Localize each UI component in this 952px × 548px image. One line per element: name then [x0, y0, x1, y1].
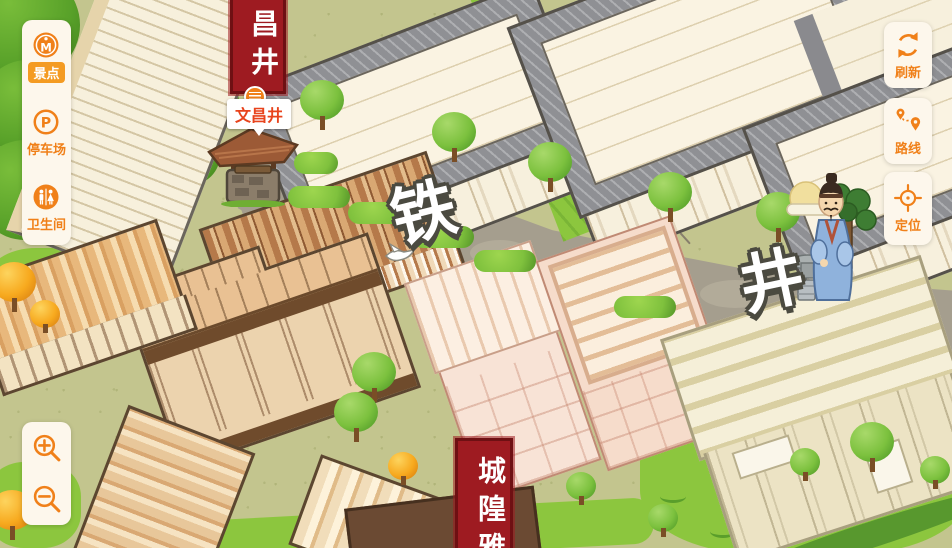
- sidebar-item-restroom[interactable]: 卫生间: [27, 182, 66, 233]
- poi-banner-top[interactable]: 文昌井: [230, 0, 286, 94]
- map-canvas[interactable]: 铁 井 文昌井 城隍雅 文昌井: [0, 0, 952, 548]
- sidebar-item-label: 卫生间: [27, 214, 66, 233]
- locate-button[interactable]: 定位: [884, 172, 932, 245]
- parking-icon: P: [31, 107, 61, 137]
- orange-tree: [388, 452, 418, 485]
- locate-icon: [893, 183, 923, 213]
- poi-label[interactable]: 文昌井: [227, 99, 291, 129]
- control-label: 定位: [895, 215, 921, 234]
- poi-label-pointer: [253, 128, 265, 136]
- street-name-char: 井: [734, 244, 810, 320]
- route-icon: [893, 106, 923, 136]
- magnifier-plus-icon: [30, 431, 64, 465]
- orange-tree: [30, 300, 60, 333]
- tree: [648, 172, 692, 222]
- svg-text:P: P: [41, 115, 51, 131]
- tree: [850, 422, 894, 472]
- tree: [300, 80, 344, 130]
- tree: [920, 456, 950, 489]
- tree: [648, 504, 678, 537]
- tree: [334, 392, 378, 442]
- scenic-spot-icon: M: [31, 30, 61, 60]
- sidebar-item-label: 停车场: [27, 139, 66, 158]
- sidebar-item-label: 景点: [28, 62, 64, 83]
- magnifier-minus-icon: [30, 482, 64, 516]
- tree: [528, 142, 572, 192]
- tree: [432, 112, 476, 162]
- restroom-icon: [31, 182, 61, 212]
- bush: [294, 152, 338, 174]
- control-label: 刷新: [895, 62, 921, 81]
- tree: [790, 448, 820, 481]
- tree: [566, 472, 596, 505]
- category-panel: M 景点 P 停车场 卫生间: [22, 20, 71, 245]
- zoom-panel: [22, 422, 71, 525]
- svg-text:M: M: [41, 41, 53, 55]
- zoom-in-button[interactable]: [30, 431, 64, 465]
- bush: [474, 250, 536, 272]
- sidebar-item-scenic[interactable]: M 景点: [28, 30, 64, 83]
- control-label: 路线: [895, 138, 921, 157]
- refresh-button[interactable]: 刷新: [884, 22, 932, 88]
- poi-label-text: 文昌井: [235, 106, 283, 125]
- poi-banner-bottom[interactable]: 城隍雅: [455, 438, 513, 548]
- refresh-icon: [893, 30, 923, 60]
- zoom-out-button[interactable]: [30, 482, 64, 516]
- wall-panel: [731, 434, 797, 479]
- grass-squiggle: [660, 490, 686, 503]
- route-button[interactable]: 路线: [884, 98, 932, 164]
- sidebar-item-parking[interactable]: P 停车场: [27, 107, 66, 158]
- bush: [614, 296, 676, 318]
